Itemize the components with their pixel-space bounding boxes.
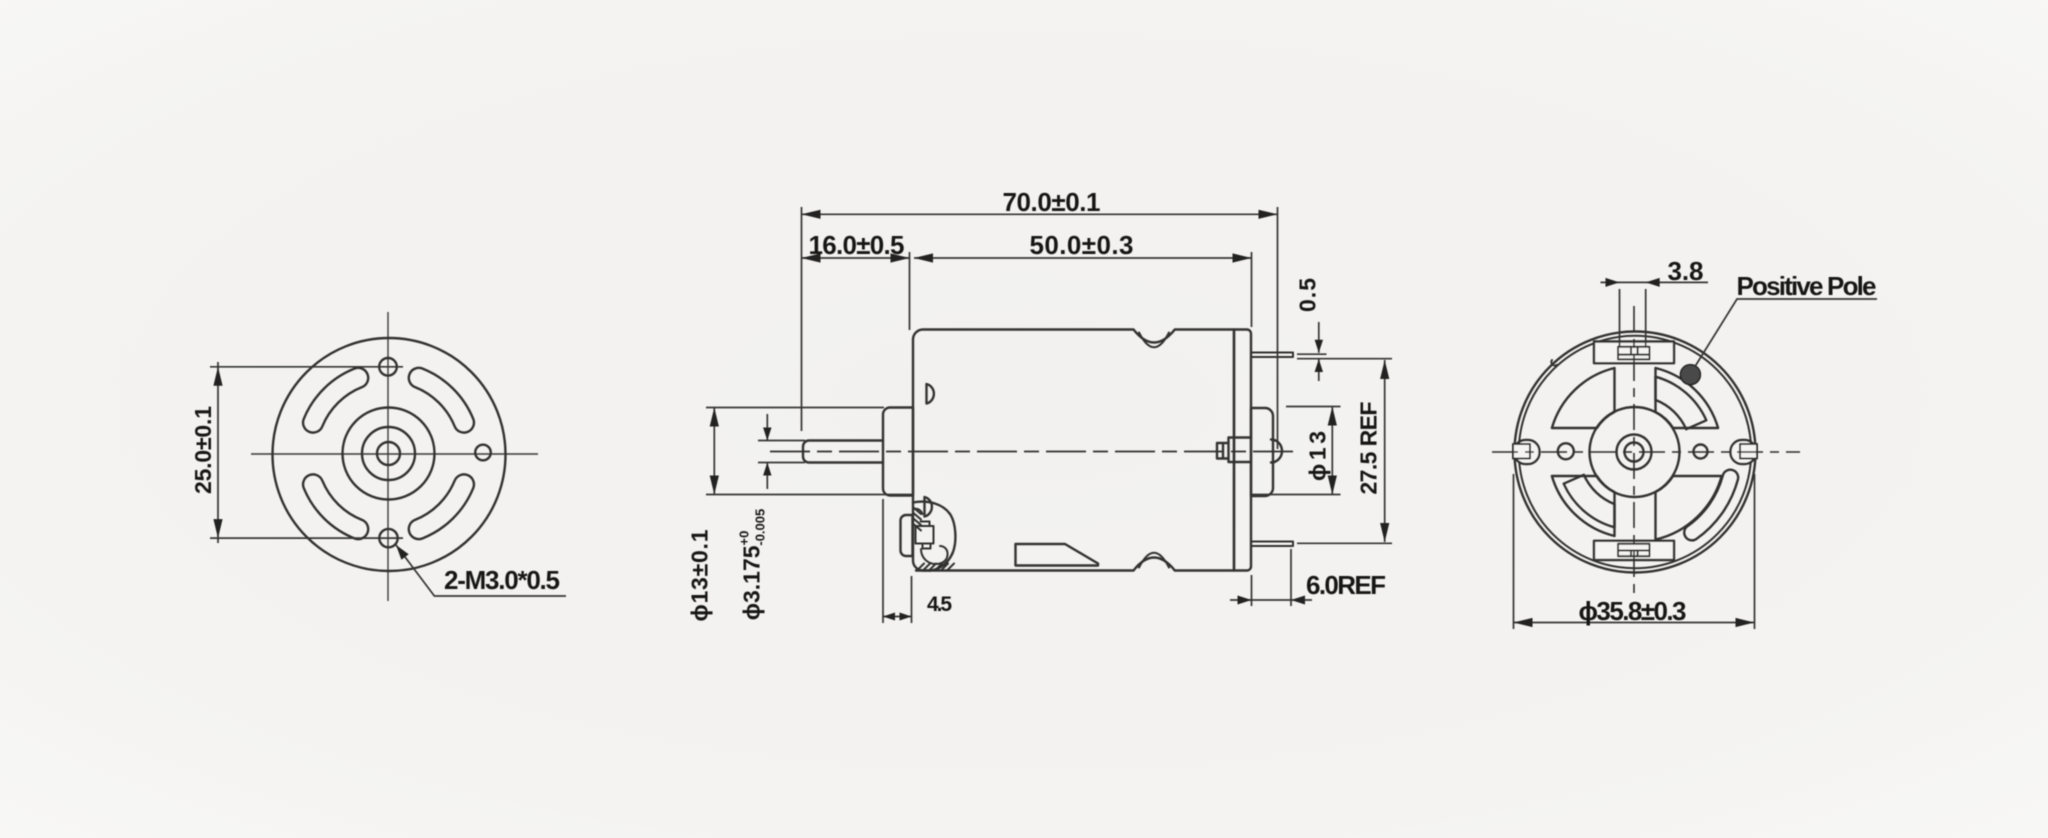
svg-text:50.0±0.3: 50.0±0.3	[1030, 230, 1134, 260]
svg-text:Positive Pole: Positive Pole	[1737, 271, 1877, 301]
svg-text:3.8: 3.8	[1668, 256, 1704, 286]
svg-text:ϕ13: ϕ13	[1305, 431, 1331, 481]
svg-text:4.5: 4.5	[927, 593, 952, 616]
svg-text:2-M3.0*0.5: 2-M3.0*0.5	[444, 565, 560, 595]
svg-text:27.5 REF: 27.5 REF	[1356, 402, 1382, 495]
svg-text:ϕ35.8±0.3: ϕ35.8±0.3	[1579, 596, 1687, 626]
svg-text:6.0REF: 6.0REF	[1306, 570, 1386, 600]
svg-text:ϕ13±0.1: ϕ13±0.1	[687, 529, 713, 621]
svg-text:25.0±0.1: 25.0±0.1	[190, 406, 216, 494]
svg-text:70.0±0.1: 70.0±0.1	[1003, 187, 1101, 217]
svg-text:16.0±0.5: 16.0±0.5	[809, 230, 905, 260]
svg-text:0.5: 0.5	[1295, 278, 1321, 312]
